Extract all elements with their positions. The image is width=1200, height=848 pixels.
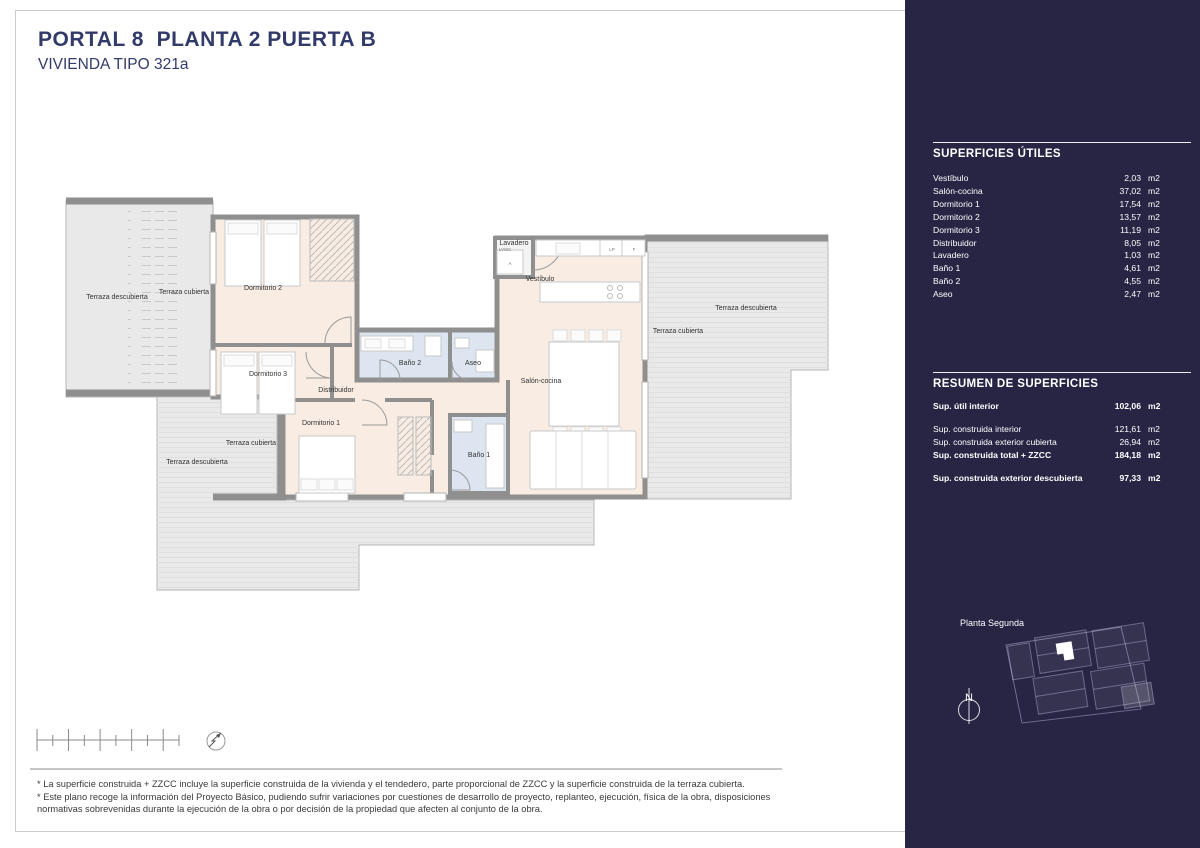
surface-row: Sup. construida interior121,61m2	[933, 423, 1168, 436]
surface-row: Salón-cocina37,02m2	[933, 185, 1168, 198]
label-lavadero-sub: LV/SC	[499, 247, 512, 252]
surface-lbl: Lavadero	[933, 249, 1097, 262]
surface-unit: m2	[1141, 262, 1168, 275]
label-kitchen-f: F	[633, 247, 636, 252]
surface-val: 2,47	[1097, 288, 1141, 301]
surface-lbl: Dormitorio 2	[933, 211, 1097, 224]
surface-unit: m2	[1141, 211, 1168, 224]
footnote: * La superficie construida + ZZCC incluy…	[37, 778, 779, 791]
footer-notes: * La superficie construida + ZZCC incluy…	[37, 778, 779, 816]
surface-val: 11,19	[1097, 224, 1141, 237]
surface-unit: m2	[1141, 449, 1168, 462]
label-terraza-cubierta-nw: Terraza cubierta	[159, 289, 209, 296]
surface-val: 4,61	[1097, 262, 1141, 275]
surface-val: 17,54	[1097, 198, 1141, 211]
compass-icon	[207, 732, 225, 750]
surface-unit: m2	[1141, 249, 1168, 262]
label-washer: A	[508, 261, 511, 266]
surface-lbl: Dormitorio 1	[933, 198, 1097, 211]
surface-val: 102,06	[1097, 400, 1141, 413]
surface-row: Baño 24,55m2	[933, 275, 1168, 288]
label-salon-cocina: Salón-cocina	[521, 378, 562, 385]
label-terraza-cubierta-e: Terraza cubierta	[653, 328, 703, 335]
surface-row: Sup. construida exterior descubierta97,3…	[933, 472, 1168, 485]
surface-lbl: Sup. construida total + ZZCC	[933, 449, 1097, 462]
surface-row: Dormitorio 311,19m2	[933, 224, 1168, 237]
surface-row: Dormitorio 117,54m2	[933, 198, 1168, 211]
surface-lbl: Sup. construida interior	[933, 423, 1097, 436]
footer-divider	[30, 768, 782, 770]
north-arrow-icon: N	[935, 680, 1005, 750]
surface-unit: m2	[1141, 288, 1168, 301]
label-lavadero: Lavadero	[499, 240, 528, 247]
surface-lbl: Distribuidor	[933, 237, 1097, 250]
surface-unit: m2	[1141, 198, 1168, 211]
label-dormitorio-2: Dormitorio 2	[244, 285, 282, 292]
svg-text:N: N	[965, 692, 973, 704]
surface-row: Sup. construida exterior cubierta26,94m2	[933, 436, 1168, 449]
surface-lbl: Salón-cocina	[933, 185, 1097, 198]
superficies-table: Vestíbulo2,03m2Salón-cocina37,02m2Dormit…	[933, 172, 1168, 301]
label-terraza-descubierta-nw: Terraza descubierta	[86, 294, 148, 301]
surface-row: Aseo2,47m2	[933, 288, 1168, 301]
surface-val: 4,55	[1097, 275, 1141, 288]
resumen-table: Sup. útil interior102,06m2Sup. construid…	[933, 400, 1168, 485]
surface-unit: m2	[1141, 237, 1168, 250]
footnote: * Este plano recoge la información del P…	[37, 791, 779, 816]
label-bano-2: Baño 2	[399, 360, 421, 367]
surface-row: Vestíbulo2,03m2	[933, 172, 1168, 185]
resumen-title: RESUMEN DE SUPERFICIES	[933, 378, 1098, 390]
surface-lbl: Sup. construida exterior cubierta	[933, 436, 1097, 449]
surface-lbl: Sup. útil interior	[933, 400, 1097, 413]
label-distribuidor: Distribuidor	[318, 387, 354, 394]
surface-lbl: Sup. construida exterior descubierta	[933, 472, 1097, 485]
label-aseo: Aseo	[465, 360, 481, 367]
surface-val: 1,03	[1097, 249, 1141, 262]
label-terraza-descubierta-e: Terraza descubierta	[715, 305, 777, 312]
sidebar-rule-2	[933, 372, 1191, 373]
surface-unit: m2	[1141, 472, 1168, 485]
surface-val: 184,18	[1097, 449, 1141, 462]
surface-val: 8,05	[1097, 237, 1141, 250]
label-terraza-cubierta-sw: Terraza cubierta	[226, 440, 276, 447]
surface-unit: m2	[1141, 224, 1168, 237]
surface-lbl: Baño 2	[933, 275, 1097, 288]
label-bano-1: Baño 1	[468, 452, 490, 459]
surface-lbl: Aseo	[933, 288, 1097, 301]
surface-unit: m2	[1141, 436, 1168, 449]
label-dormitorio-3: Dormitorio 3	[249, 371, 287, 378]
superficies-title: SUPERFICIES ÚTILES	[933, 148, 1061, 160]
sidebar: SUPERFICIES ÚTILES Vestíbulo2,03m2Salón-…	[905, 0, 1200, 848]
surface-val: 121,61	[1097, 423, 1141, 436]
scale-bar	[37, 729, 179, 751]
surface-val: 37,02	[1097, 185, 1141, 198]
surface-val: 26,94	[1097, 436, 1141, 449]
surface-lbl: Vestíbulo	[933, 172, 1097, 185]
surface-row: Lavadero1,03m2	[933, 249, 1168, 262]
surface-unit: m2	[1141, 172, 1168, 185]
surface-unit: m2	[1141, 275, 1168, 288]
surface-row: Baño 14,61m2	[933, 262, 1168, 275]
surface-val: 97,33	[1097, 472, 1141, 485]
surface-val: 2,03	[1097, 172, 1141, 185]
surface-unit: m2	[1141, 400, 1168, 413]
label-terraza-descubierta-sw: Terraza descubierta	[166, 459, 228, 466]
surface-val: 13,57	[1097, 211, 1141, 224]
surface-row: Dormitorio 213,57m2	[933, 211, 1168, 224]
floor-plan: Terraza descubiertaTerraza cubiertaDormi…	[0, 0, 905, 848]
label-dormitorio-1: Dormitorio 1	[302, 420, 340, 427]
label-vestibulo: Vestíbulo	[526, 276, 555, 283]
surface-row: Distribuidor8,05m2	[933, 237, 1168, 250]
label-kitchen-lp: LP	[609, 247, 615, 252]
surface-unit: m2	[1141, 423, 1168, 436]
terrace-east	[645, 235, 828, 499]
surface-row: Sup. útil interior102,06m2	[933, 400, 1168, 413]
surface-lbl: Baño 1	[933, 262, 1097, 275]
surface-row: Sup. construida total + ZZCC184,18m2	[933, 449, 1168, 462]
surface-unit: m2	[1141, 185, 1168, 198]
surface-lbl: Dormitorio 3	[933, 224, 1097, 237]
sidebar-rule-1	[933, 142, 1191, 143]
